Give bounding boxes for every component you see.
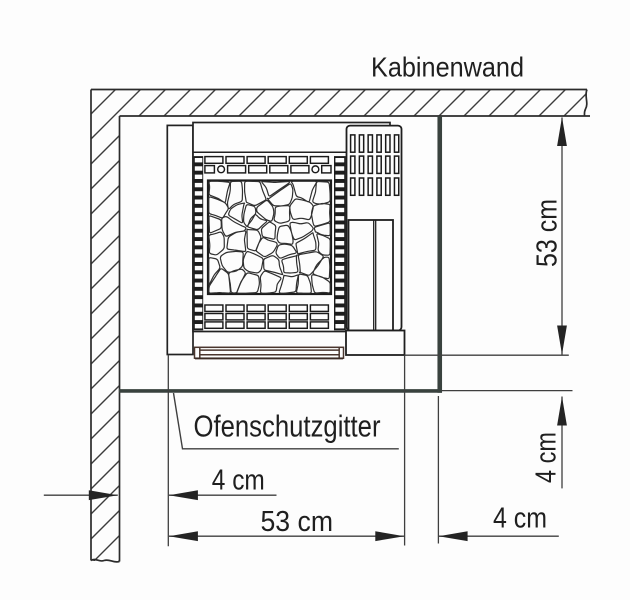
svg-text:53 cm: 53 cm (261, 506, 334, 538)
svg-text:4 cm: 4 cm (531, 432, 563, 483)
svg-text:Ofenschutzgitter: Ofenschutzgitter (194, 409, 381, 444)
svg-text:53 cm: 53 cm (532, 199, 564, 267)
svg-text:Kabinenwand: Kabinenwand (371, 52, 524, 83)
svg-text:4 cm: 4 cm (212, 464, 265, 496)
svg-text:4 cm: 4 cm (493, 503, 547, 535)
